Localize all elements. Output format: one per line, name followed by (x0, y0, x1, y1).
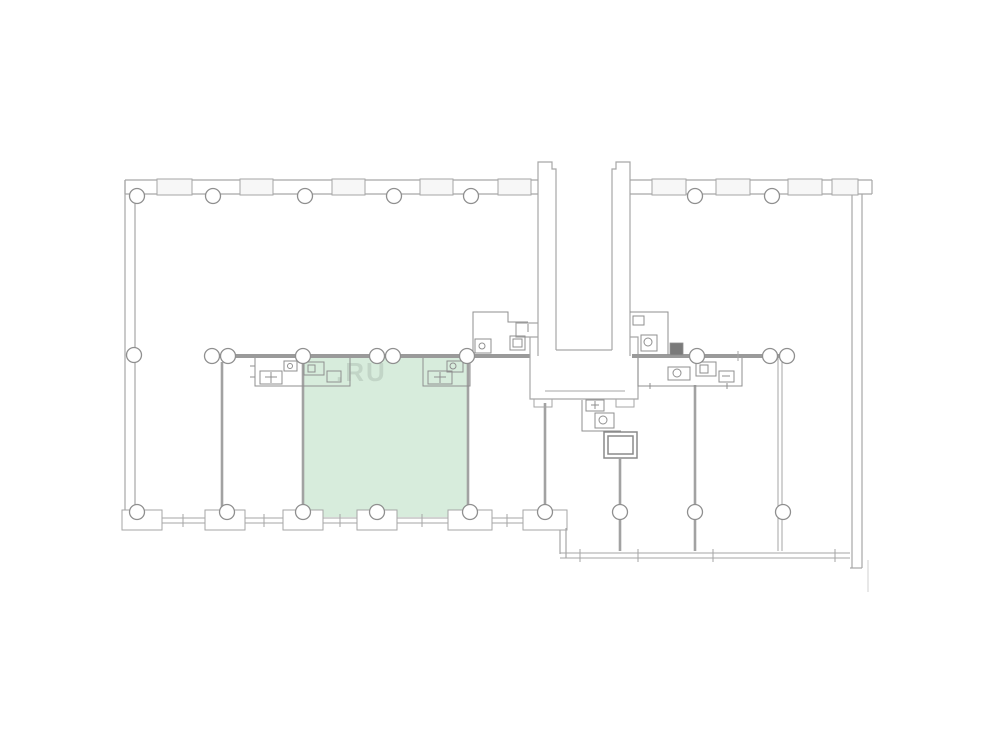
core-bathroom (582, 400, 621, 431)
elevator-shaft (604, 432, 637, 458)
elevator-door (670, 343, 683, 355)
central-core (516, 162, 638, 551)
floor-plan-screen: .RU (0, 0, 1000, 750)
bathroom-block-right (638, 358, 742, 389)
bottom-wall-right (560, 549, 850, 562)
floor-plan-svg: .RU (0, 0, 1000, 750)
bathroom-block-near-core-left (473, 312, 528, 355)
right-wing-windows (652, 179, 858, 195)
